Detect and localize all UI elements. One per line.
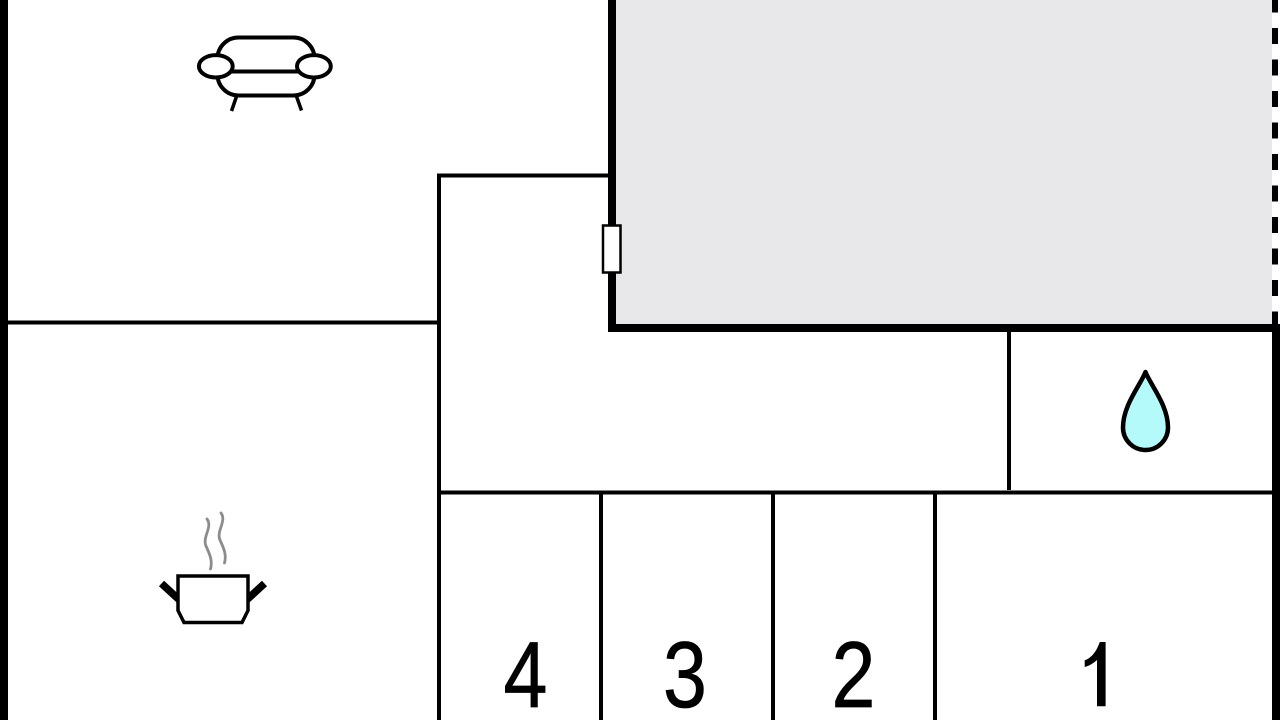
svg-text:2: 2 [832,623,876,720]
svg-text:4: 4 [504,623,548,720]
svg-text:3: 3 [663,623,707,720]
